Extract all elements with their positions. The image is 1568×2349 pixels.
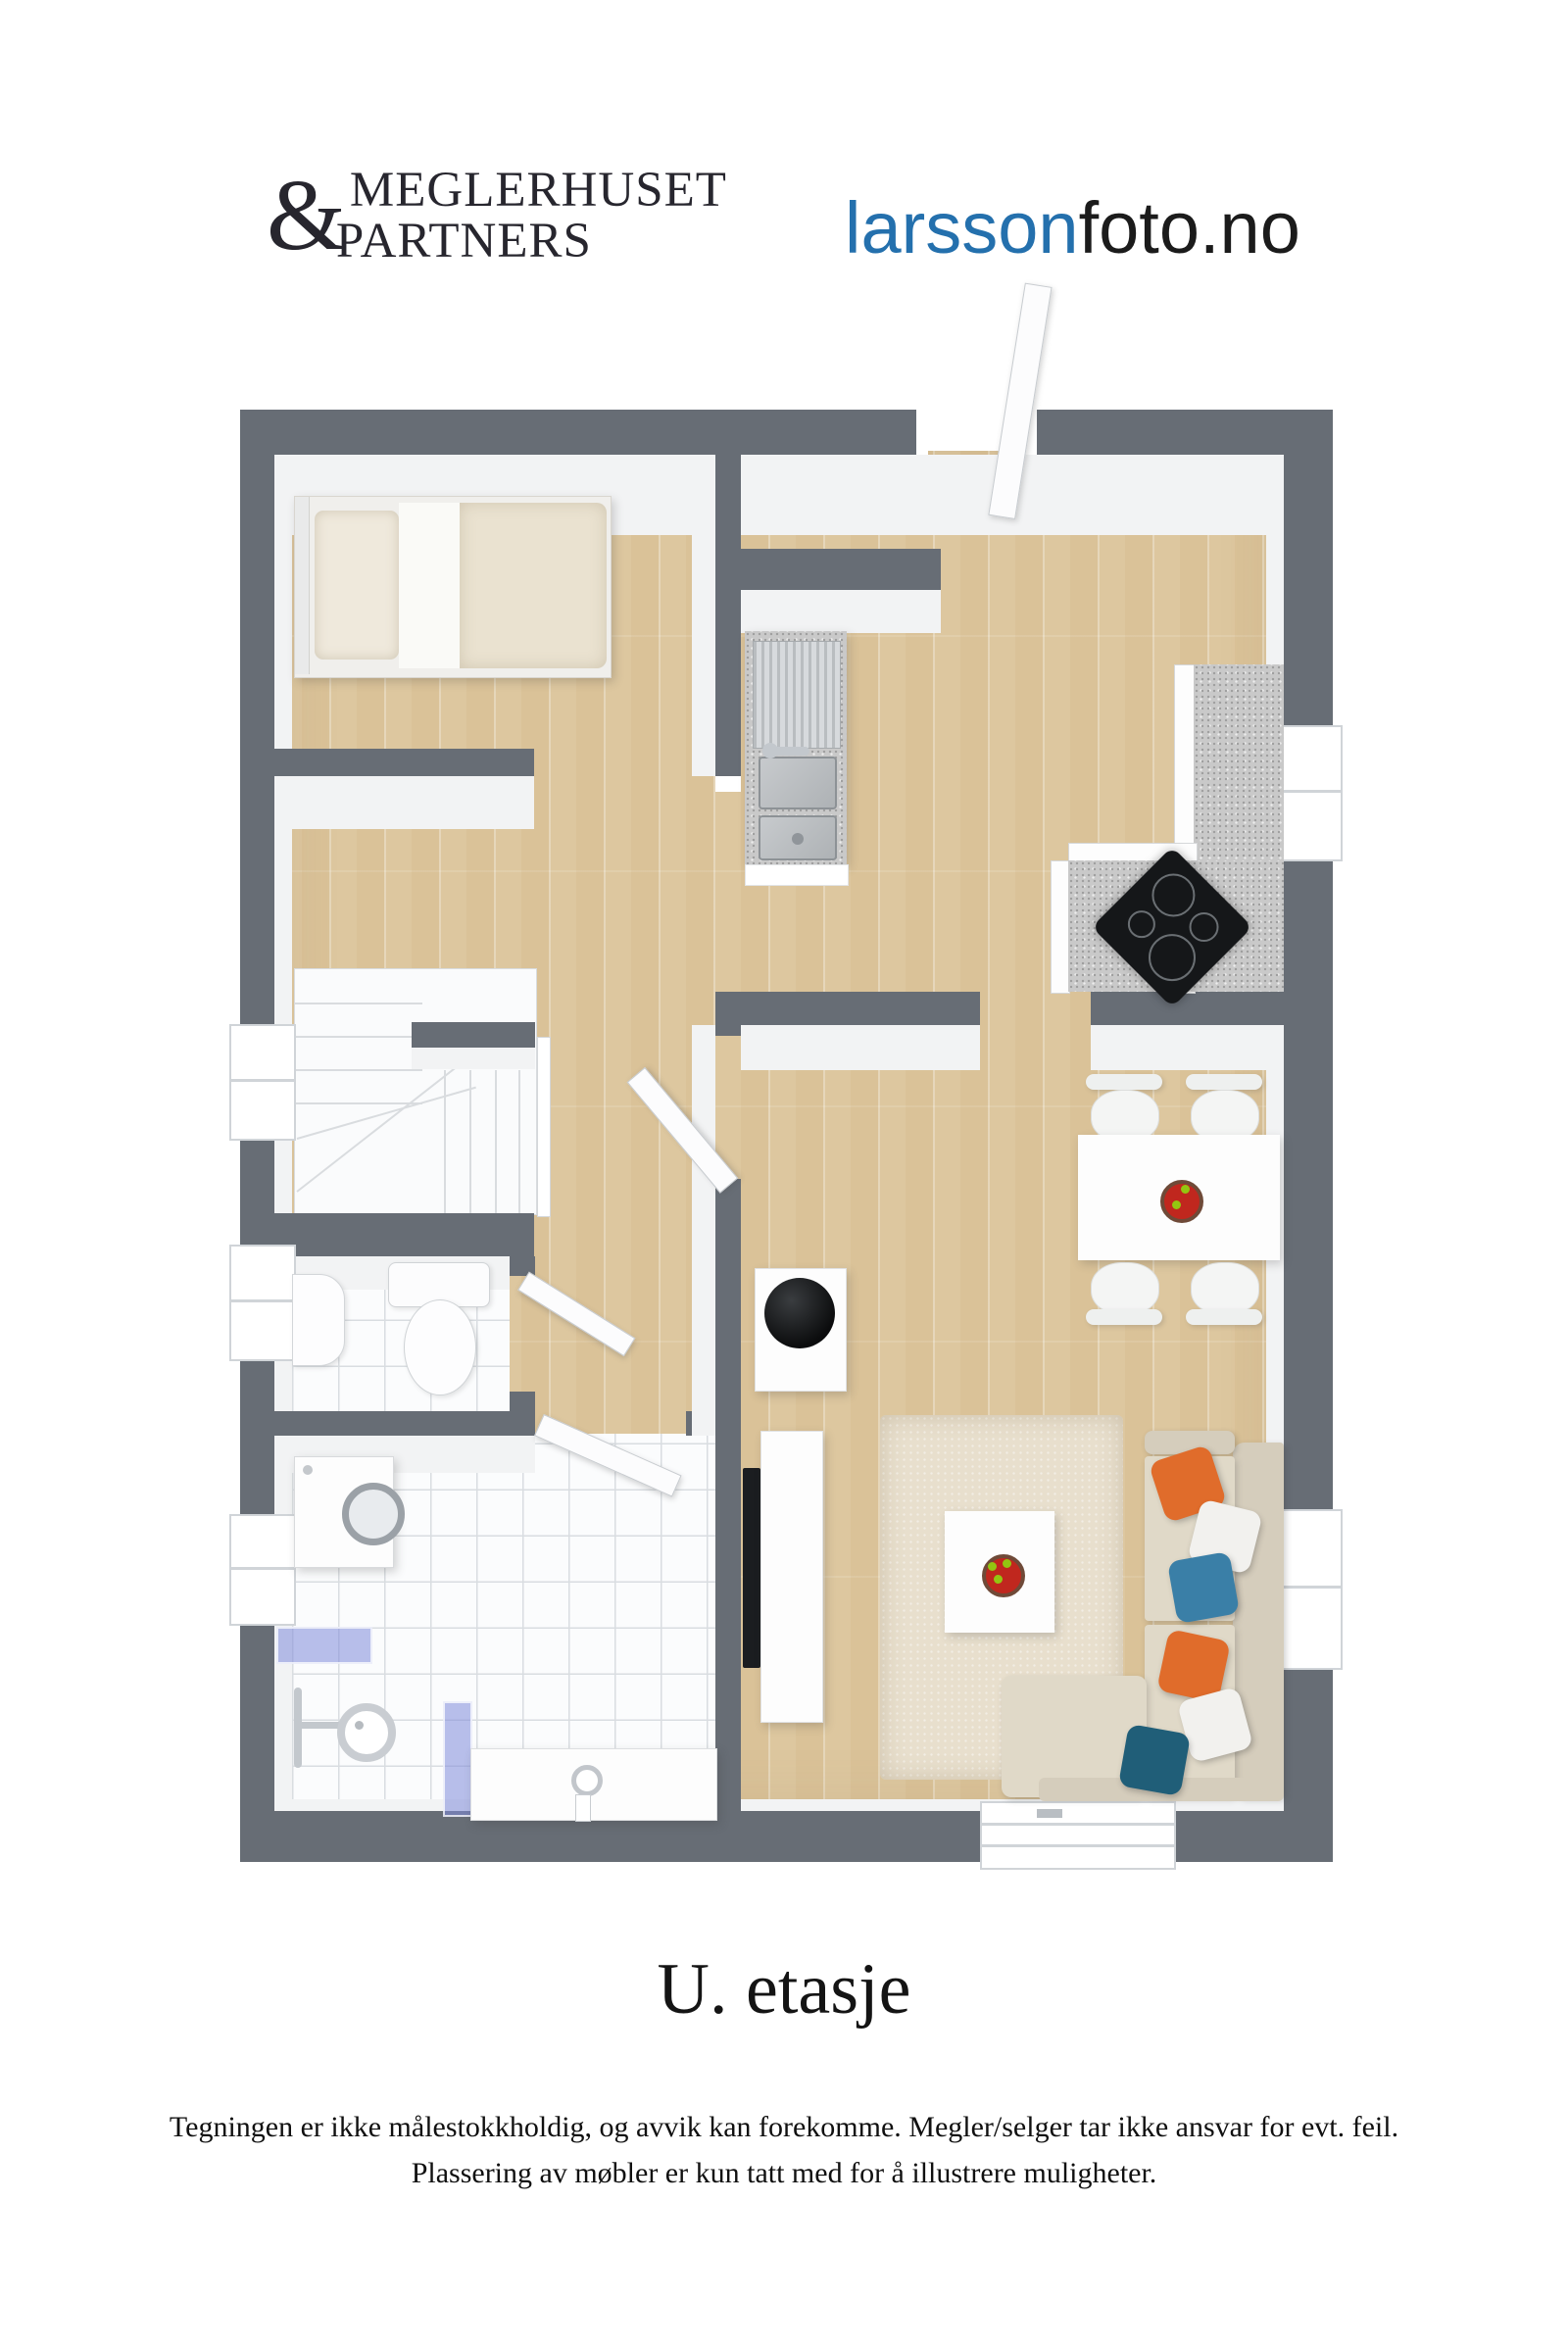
sink-bowl bbox=[759, 757, 837, 809]
wall bbox=[1091, 992, 1284, 1025]
faucet-icon bbox=[762, 743, 778, 759]
wall bbox=[274, 1213, 534, 1256]
counter-end-cap bbox=[745, 864, 849, 886]
toilet-bowl bbox=[404, 1299, 476, 1395]
stair-winder bbox=[297, 1087, 476, 1140]
stair-tread bbox=[295, 1102, 422, 1104]
burner-icon bbox=[1122, 905, 1161, 944]
bed bbox=[294, 496, 612, 678]
sink-bowl bbox=[759, 815, 837, 860]
wall bbox=[741, 992, 980, 1025]
wall bbox=[741, 549, 941, 590]
door-handle-icon bbox=[1037, 1809, 1062, 1818]
stair-tread bbox=[495, 1070, 497, 1214]
stair-tread bbox=[295, 1069, 422, 1071]
window-mullion bbox=[231, 1079, 294, 1082]
dining-chair bbox=[1091, 1262, 1159, 1315]
washer-control-icon bbox=[303, 1465, 313, 1475]
floor-title: U. etasje bbox=[0, 1948, 1568, 2031]
wall-face bbox=[692, 1025, 715, 1436]
shower-glass-panel bbox=[276, 1627, 372, 1664]
disclaimer-text: Tegningen er ikke målestokkholdig, og av… bbox=[0, 2105, 1568, 2196]
bed-pillow bbox=[315, 511, 399, 660]
dining-table bbox=[1078, 1135, 1280, 1260]
wall bbox=[240, 410, 274, 1024]
dining-chair bbox=[1086, 1309, 1162, 1325]
wall bbox=[715, 1179, 741, 1436]
window bbox=[1276, 1509, 1343, 1670]
window bbox=[229, 1514, 296, 1626]
window bbox=[229, 1024, 296, 1141]
kitchen-sink-counter bbox=[745, 631, 847, 864]
tv-bench bbox=[760, 1431, 823, 1723]
stair-tread bbox=[444, 1070, 446, 1214]
sink-drain-icon bbox=[792, 833, 804, 845]
wall bbox=[240, 410, 916, 455]
wall bbox=[1284, 410, 1333, 725]
wall bbox=[240, 1357, 274, 1514]
wall-face bbox=[692, 535, 715, 776]
vanity-faucet-icon bbox=[575, 1794, 591, 1822]
stair-tread bbox=[295, 1036, 422, 1038]
centerpiece-fruit bbox=[994, 1575, 1003, 1584]
stove-top-icon bbox=[764, 1278, 835, 1348]
dining-chair bbox=[1186, 1074, 1262, 1090]
sofa-pillow bbox=[1118, 1724, 1191, 1796]
wall bbox=[715, 451, 741, 776]
wall bbox=[715, 992, 741, 1036]
sofa-pillow bbox=[1167, 1551, 1240, 1624]
wall bbox=[1284, 1666, 1333, 1862]
patio-door bbox=[980, 1801, 1176, 1870]
window-mullion bbox=[231, 1567, 294, 1570]
wall bbox=[240, 1137, 274, 1245]
disclaimer-line-1: Tegningen er ikke målestokkholdig, og av… bbox=[0, 2105, 1568, 2151]
stair-tread bbox=[295, 1003, 422, 1004]
wall bbox=[240, 1622, 274, 1862]
wall bbox=[274, 1411, 535, 1436]
window bbox=[229, 1245, 296, 1361]
wc-washbasin bbox=[292, 1274, 345, 1366]
disclaimer-line-2: Plassering av møbler er kun tatt med for… bbox=[0, 2151, 1568, 2197]
centerpiece-fruit bbox=[1181, 1185, 1190, 1194]
shower-glass-panel bbox=[443, 1701, 472, 1817]
stair-tread bbox=[469, 1070, 471, 1214]
wall bbox=[274, 749, 534, 776]
bed-duvet bbox=[460, 503, 607, 668]
patio-door-rail bbox=[982, 1844, 1174, 1847]
coffee-table bbox=[945, 1511, 1054, 1633]
kitchen-cabinet-front bbox=[1051, 860, 1070, 994]
bed-headboard bbox=[295, 497, 310, 674]
bathroom-vanity bbox=[470, 1748, 717, 1821]
wall-face bbox=[412, 1048, 535, 1069]
wall-face bbox=[741, 1025, 980, 1070]
wall bbox=[412, 1022, 535, 1048]
dining-chair bbox=[1186, 1309, 1262, 1325]
wall-face bbox=[274, 776, 534, 829]
centerpiece-fruit bbox=[1166, 1188, 1175, 1197]
shower-head-icon bbox=[337, 1703, 396, 1762]
bed-sheet bbox=[399, 503, 460, 668]
washer-door-icon bbox=[342, 1483, 405, 1545]
wall bbox=[715, 1436, 741, 1813]
sink-drainboard bbox=[753, 641, 841, 749]
table-centerpiece bbox=[982, 1554, 1025, 1597]
table-centerpiece bbox=[1160, 1180, 1203, 1223]
wall-cap bbox=[715, 776, 741, 792]
door-jamb bbox=[916, 410, 928, 455]
stair-railing bbox=[537, 1037, 551, 1217]
wall bbox=[1284, 857, 1333, 1509]
wall-face bbox=[741, 590, 941, 633]
wall-face bbox=[1091, 1025, 1284, 1070]
window-mullion bbox=[1278, 790, 1341, 793]
washing-machine bbox=[294, 1456, 394, 1568]
staircase bbox=[294, 968, 537, 1215]
stair-tread bbox=[518, 1070, 520, 1214]
shower-drain-icon bbox=[355, 1721, 364, 1730]
centerpiece-fruit bbox=[1003, 1559, 1011, 1568]
centerpiece-fruit bbox=[988, 1562, 997, 1571]
dining-chair bbox=[1086, 1074, 1162, 1090]
centerpiece-fruit bbox=[1172, 1200, 1181, 1209]
window-mullion bbox=[1278, 1586, 1341, 1589]
vanity-drain-icon bbox=[571, 1765, 603, 1796]
wood-stove bbox=[755, 1268, 847, 1392]
tv-screen bbox=[743, 1468, 760, 1668]
patio-door-rail bbox=[982, 1823, 1174, 1826]
window-mullion bbox=[231, 1299, 294, 1302]
window bbox=[1276, 725, 1343, 861]
dining-chair bbox=[1191, 1262, 1259, 1315]
